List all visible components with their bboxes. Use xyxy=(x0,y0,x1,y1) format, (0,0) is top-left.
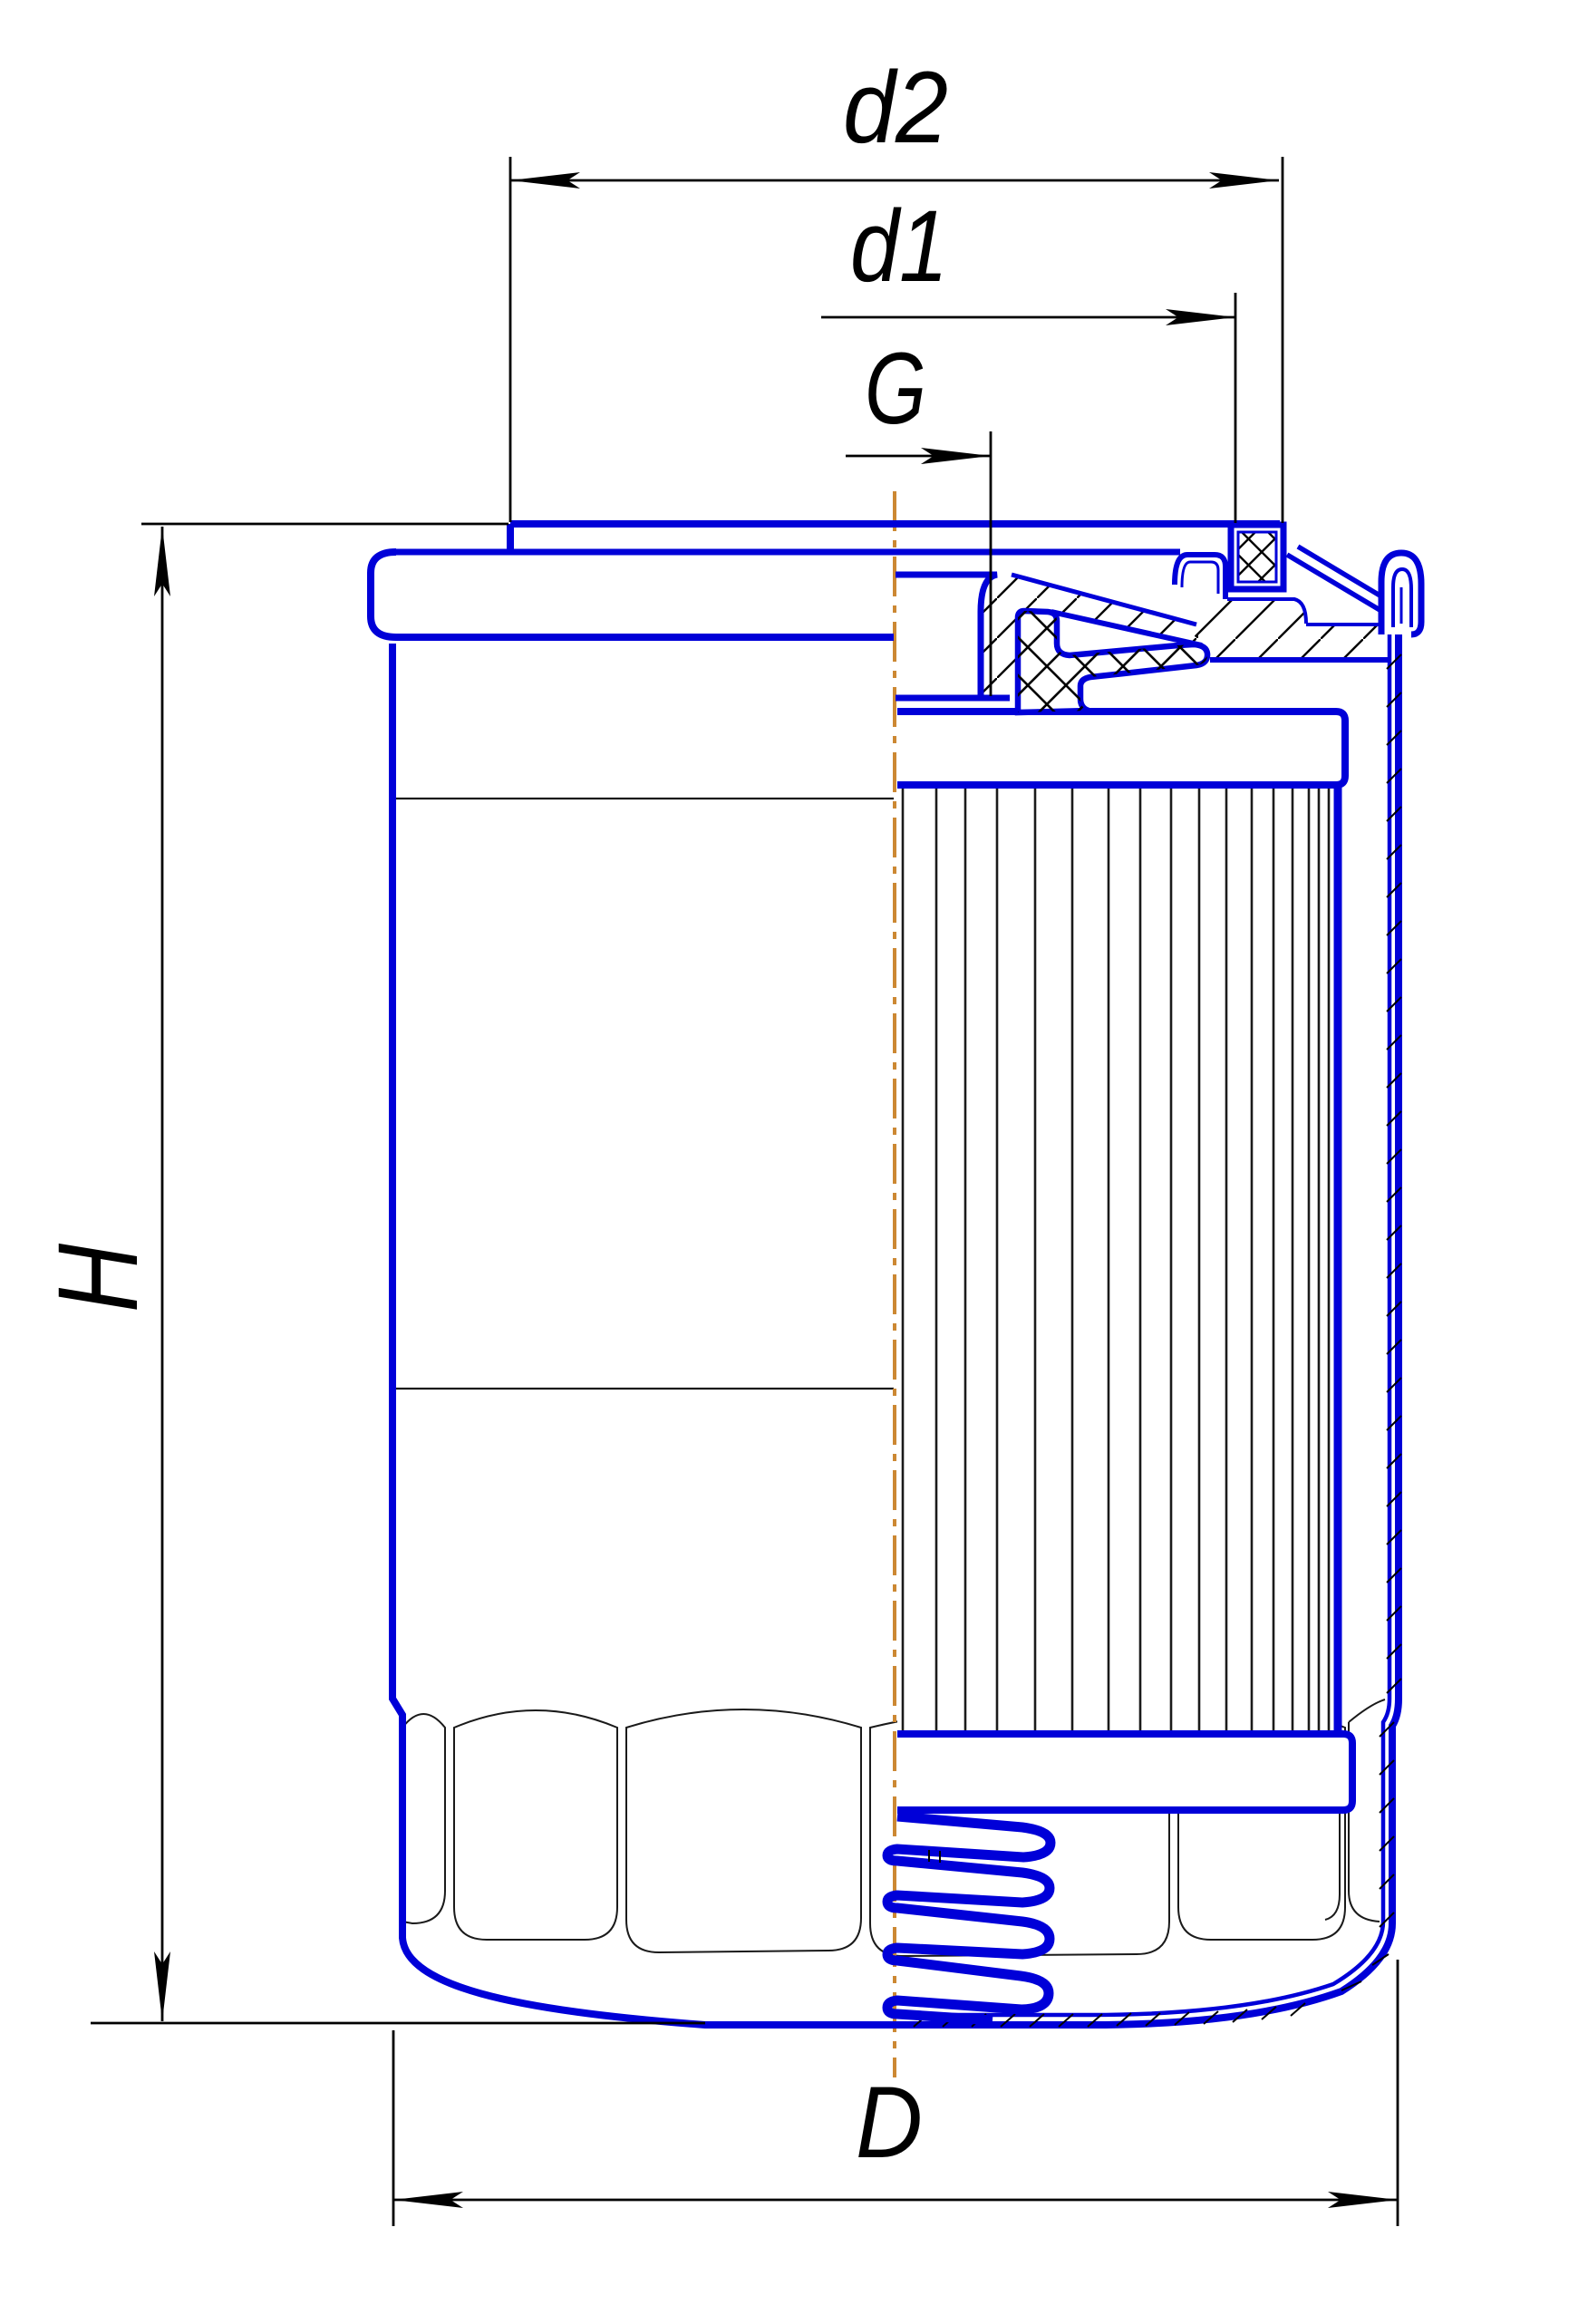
svg-text:D: D xyxy=(856,2066,923,2179)
svg-text:G: G xyxy=(865,332,926,445)
svg-text:d2: d2 xyxy=(843,51,948,164)
svg-text:d1: d1 xyxy=(850,189,948,303)
svg-text:H: H xyxy=(35,1243,161,1312)
